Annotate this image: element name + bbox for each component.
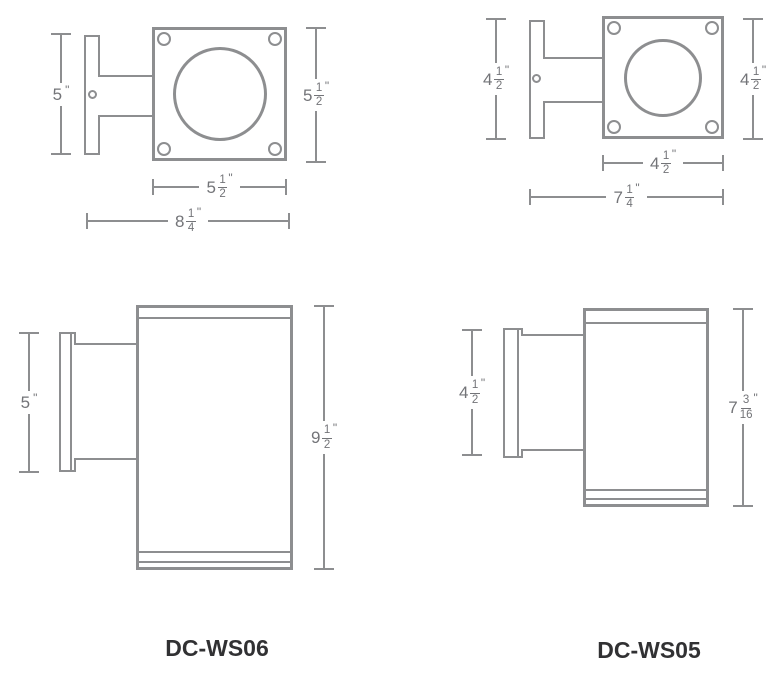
dim-tick (19, 471, 39, 473)
dim-line (60, 106, 62, 154)
ws06-cylinder-body (136, 305, 293, 570)
ws06-corner-screw (157, 142, 171, 156)
ws05-overall-depth-dimension: 7 14 " (529, 181, 724, 213)
ws05-lens-circle (624, 39, 702, 117)
dim-whole: 5 (206, 179, 215, 196)
dimension-label: 5 " (21, 391, 38, 414)
ws05-corner-screw (705, 21, 719, 35)
dim-line (752, 95, 754, 138)
dim-tick (722, 155, 724, 171)
dim-line (88, 220, 168, 222)
dim-whole: 9 (311, 429, 320, 446)
ws05-top-plate-height-dimension: 4 12 " (484, 18, 508, 140)
dim-line (752, 20, 754, 63)
technical-drawing-canvas: 5 " 5 12 " 5 12 " (0, 0, 777, 674)
dim-tick (51, 153, 71, 155)
dim-whole: 5 (53, 86, 62, 103)
dim-line (604, 162, 643, 164)
dim-fraction: 12 (494, 66, 503, 92)
ws05-side-plate-height-dimension: 4 12 " (460, 329, 484, 456)
dim-whole: 7 (613, 189, 622, 206)
dim-tick (743, 138, 763, 140)
ws05-body-bottom-band-line (586, 489, 706, 491)
ws05-top-arm (543, 57, 604, 103)
dim-line (315, 111, 317, 161)
ws05-corner-screw (607, 21, 621, 35)
ws05-model-label: DC-WS05 (564, 637, 734, 664)
dimension-label: 4 12 " (643, 150, 683, 176)
dim-whole: 4 (740, 71, 749, 88)
dim-tick (486, 138, 506, 140)
ws06-body-top-band-line (139, 317, 290, 319)
dim-line (28, 334, 30, 391)
ws06-body-height-dimension: 9 12 " (312, 305, 336, 570)
ws06-corner-screw (157, 32, 171, 46)
ws05-cylinder-body (583, 308, 709, 507)
ws06-body-bottom-band-line (139, 551, 290, 553)
dim-fraction: 12 (218, 174, 227, 200)
dim-line (742, 424, 744, 505)
dim-line (315, 29, 317, 79)
ws05-body-top-band-line (586, 322, 706, 324)
ws06-overall-depth-dimension: 8 14 " (86, 205, 290, 237)
dimension-label: 5 12 " (303, 79, 329, 111)
dim-unit: " (754, 392, 758, 404)
dim-unit: " (333, 422, 337, 434)
dim-fraction: 12 (751, 66, 760, 92)
ws05-side-arm (521, 334, 585, 451)
dim-line (60, 35, 62, 83)
ws06-body-bottom-band-line (139, 561, 290, 563)
dim-line (471, 331, 473, 376)
ws05-top-face-height-dimension: 4 12 " (741, 18, 765, 140)
ws05-body-height-dimension: 7 316 " (731, 308, 755, 507)
dim-fraction: 14 (186, 208, 195, 234)
ws06-top-face-height-dimension: 5 12 " (304, 27, 328, 163)
dim-tick (288, 213, 290, 229)
dim-whole: 4 (483, 71, 492, 88)
dim-fraction: 316 (740, 394, 753, 420)
dim-unit: " (762, 64, 766, 76)
ws05-faceplate (602, 16, 724, 139)
dim-whole: 5 (303, 87, 312, 104)
ws06-top-plate-hole (88, 90, 97, 99)
dim-unit: " (197, 206, 201, 218)
dim-whole: 8 (175, 213, 184, 230)
dim-whole: 7 (728, 399, 737, 416)
dim-unit: " (635, 182, 639, 194)
dim-line (495, 20, 497, 63)
dim-line (323, 454, 325, 568)
dim-tick (314, 568, 334, 570)
ws06-top-plate-height-dimension: 5 " (49, 33, 73, 155)
ws05-corner-screw (705, 120, 719, 134)
dim-unit: " (65, 84, 69, 96)
dim-tick (733, 505, 753, 507)
dimension-label: 4 12 " (483, 63, 509, 95)
ws06-side-plate-flange-line (70, 334, 72, 470)
ws05-side-plate-flange-line (517, 330, 519, 456)
dim-unit: " (481, 377, 485, 389)
ws05-face-width-dimension: 4 12 " (602, 147, 724, 179)
dim-line (471, 409, 473, 454)
ws05-corner-screw (607, 120, 621, 134)
dim-line (495, 95, 497, 138)
ws06-side-plate-height-dimension: 5 " (17, 332, 41, 473)
dim-tick (462, 454, 482, 456)
dimension-label: 5 12 " (199, 174, 239, 200)
dim-line (647, 196, 722, 198)
dimension-label: 5 " (53, 83, 70, 106)
dim-whole: 4 (650, 155, 659, 172)
dimension-label: 4 12 " (459, 376, 485, 408)
dim-tick (722, 189, 724, 205)
ws05-top-plate-hole (532, 74, 541, 83)
ws05-side-mounting-plate (503, 328, 523, 458)
dim-whole: 4 (459, 384, 468, 401)
dim-line (323, 307, 325, 421)
ws06-face-width-dimension: 5 12 " (152, 171, 287, 203)
dimension-label: 4 12 " (740, 63, 766, 95)
dim-line (208, 220, 288, 222)
ws06-top-arm (98, 75, 154, 117)
dim-line (28, 414, 30, 471)
dimension-label: 8 14 " (168, 208, 208, 234)
dim-fraction: 12 (661, 150, 670, 176)
dimension-label: 9 12 " (311, 421, 337, 453)
dim-unit: " (325, 80, 329, 92)
dim-unit: " (672, 148, 676, 160)
dim-tick (306, 161, 326, 163)
dim-fraction: 12 (470, 379, 479, 405)
ws06-side-arm (74, 343, 138, 460)
dim-line (240, 186, 285, 188)
ws06-faceplate (152, 27, 287, 161)
ws06-lens-circle (173, 47, 267, 141)
dim-unit: " (228, 172, 232, 184)
dimension-label: 7 316 " (728, 391, 758, 423)
dim-fraction: 12 (314, 82, 323, 108)
dim-line (742, 310, 744, 391)
ws06-model-label: DC-WS06 (132, 635, 302, 662)
dim-line (154, 186, 199, 188)
dim-line (531, 196, 606, 198)
dim-line (683, 162, 722, 164)
dimension-label: 7 14 " (606, 184, 646, 210)
dim-unit: " (33, 392, 37, 404)
dim-tick (285, 179, 287, 195)
ws06-corner-screw (268, 32, 282, 46)
dim-fraction: 14 (625, 184, 634, 210)
dim-whole: 5 (21, 394, 30, 411)
dim-unit: " (505, 64, 509, 76)
ws05-body-bottom-band-line (586, 498, 706, 500)
dim-fraction: 12 (322, 424, 331, 450)
ws06-corner-screw (268, 142, 282, 156)
